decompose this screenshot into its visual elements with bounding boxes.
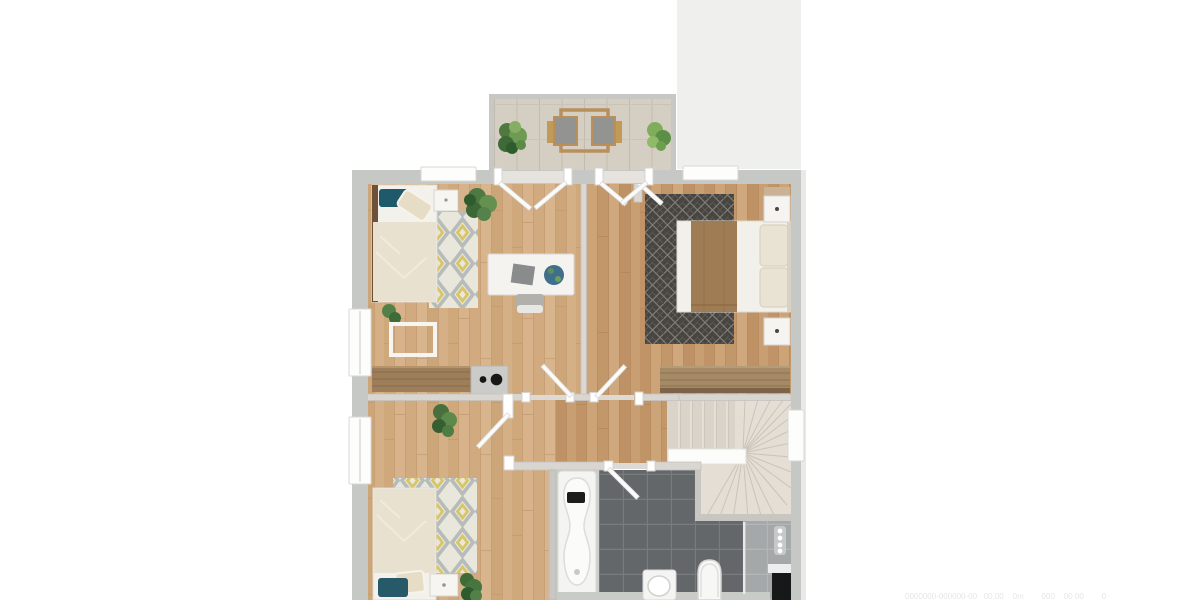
svg-text:0000000-000000-00 00.00 0: 0000000-000000-00 00.00 0m 000 00 00 0 <box>905 592 1107 600</box>
